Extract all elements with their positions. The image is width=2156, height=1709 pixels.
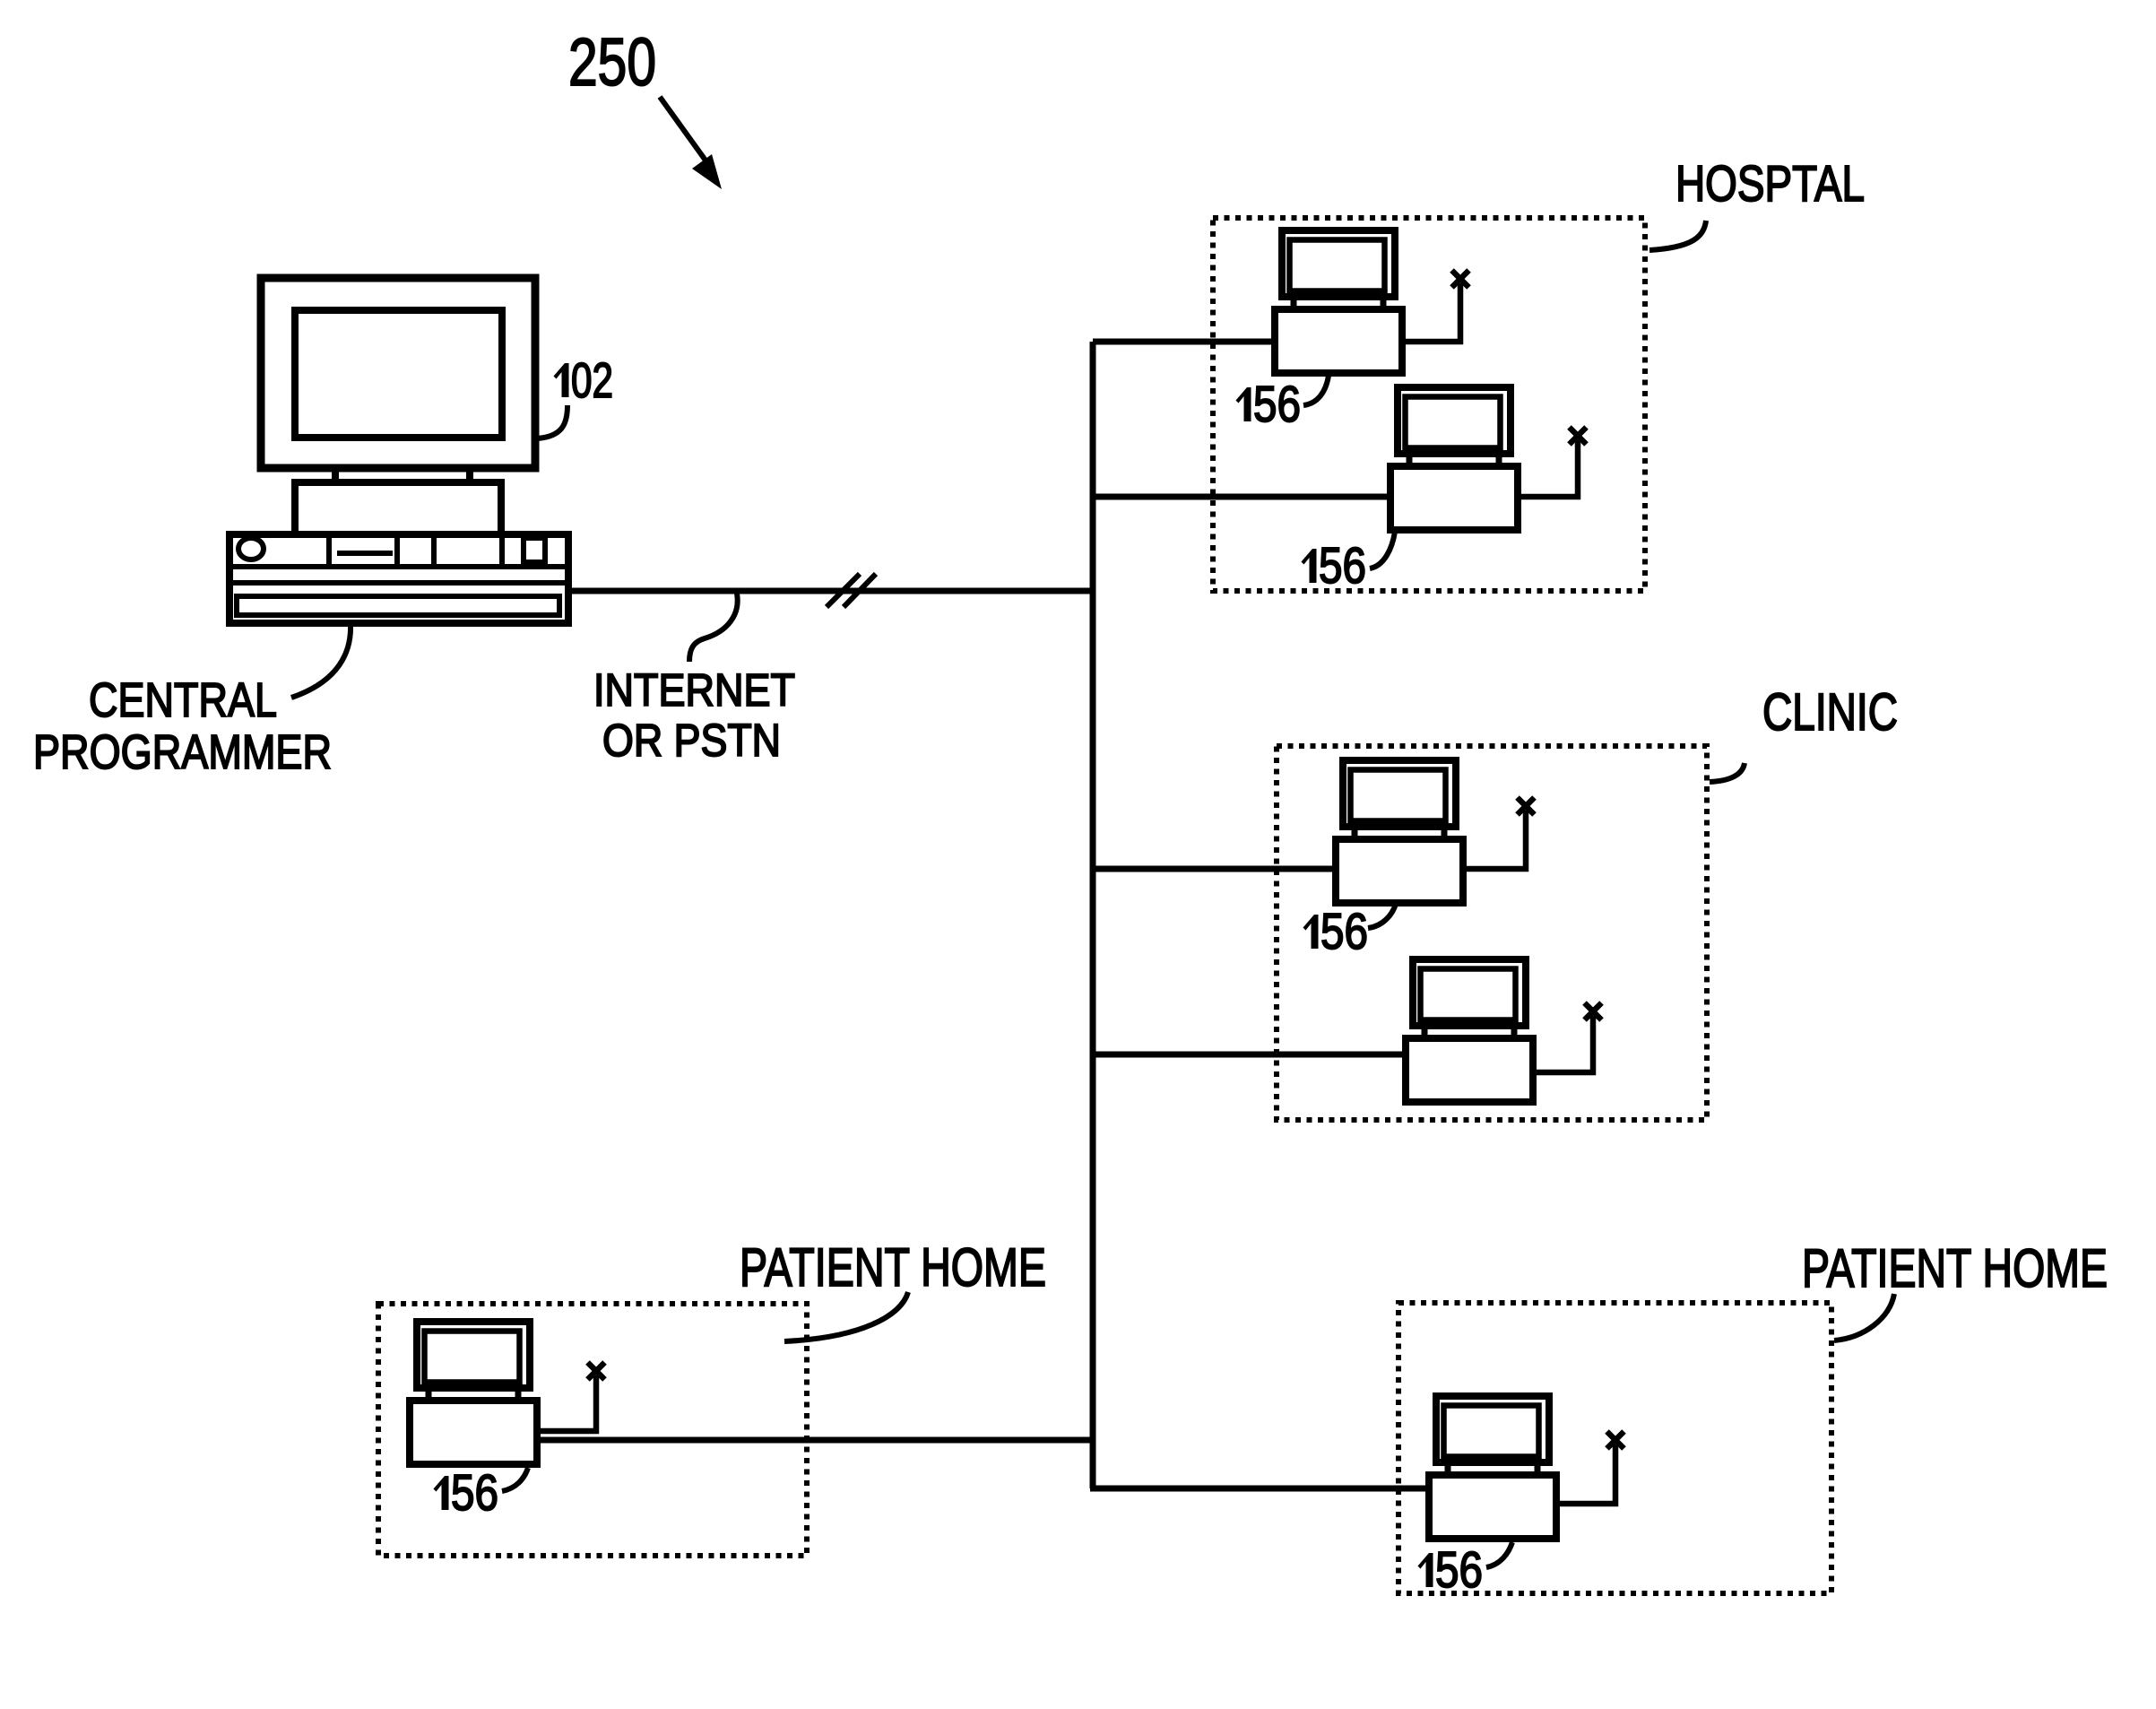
svg-text:HOSPTAL: HOSPTAL xyxy=(1675,155,1865,213)
svg-text:02: 02 xyxy=(571,352,613,408)
svg-text:56: 56 xyxy=(1319,537,1366,594)
svg-text:PROGRAMMER: PROGRAMMER xyxy=(33,725,332,779)
svg-text:56: 56 xyxy=(451,1464,498,1522)
svg-text:56: 56 xyxy=(1320,903,1368,960)
svg-text:56: 56 xyxy=(1253,376,1301,433)
svg-text:CENTRAL: CENTRAL xyxy=(89,673,277,727)
svg-text:INTERNET: INTERNET xyxy=(593,664,795,716)
svg-text:PATIENT HOME: PATIENT HOME xyxy=(740,1237,1046,1297)
svg-text:250: 250 xyxy=(568,24,656,100)
svg-text:56: 56 xyxy=(1435,1541,1483,1599)
svg-text:OR PSTN: OR PSTN xyxy=(602,715,781,766)
svg-text:CLINIC: CLINIC xyxy=(1762,683,1898,742)
svg-text:PATIENT HOME: PATIENT HOME xyxy=(1802,1238,2108,1298)
